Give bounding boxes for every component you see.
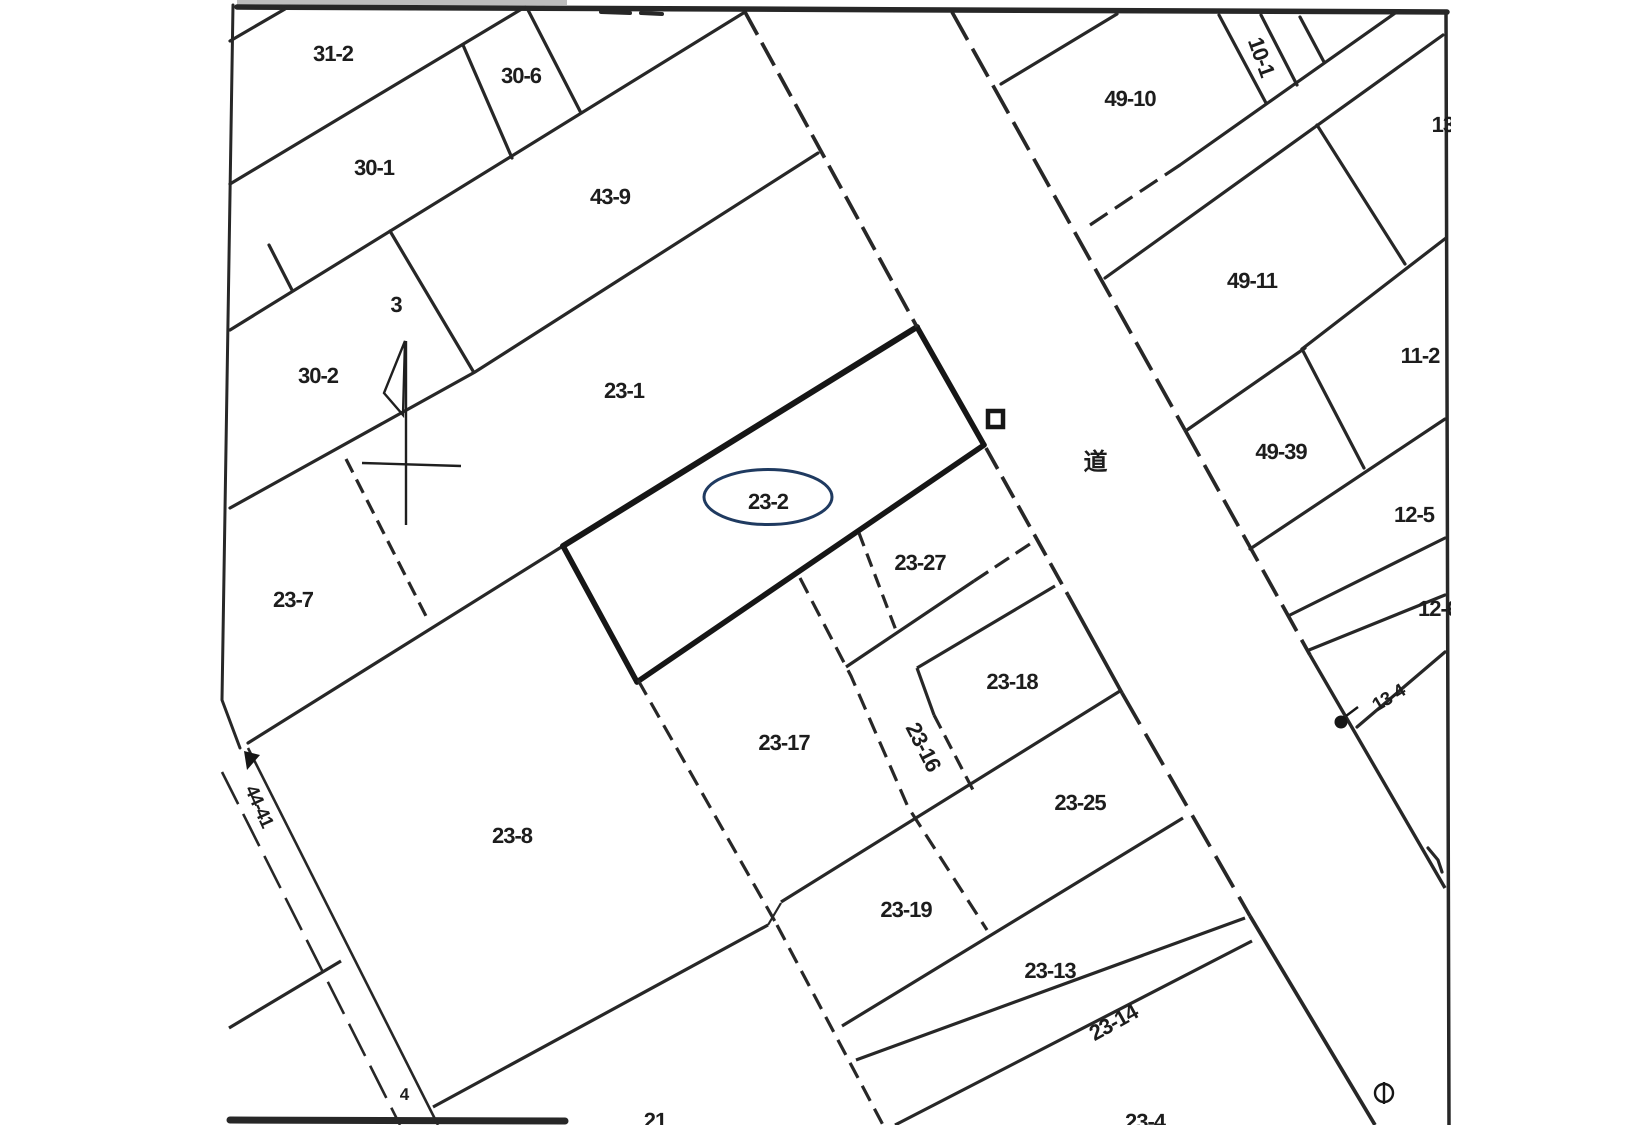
svg-text:30-1: 30-1: [354, 155, 395, 180]
svg-text:23-19: 23-19: [880, 897, 932, 922]
svg-text:11-2: 11-2: [1401, 343, 1441, 368]
svg-text:23-18: 23-18: [986, 669, 1038, 694]
svg-text:49-11: 49-11: [1227, 268, 1278, 293]
svg-text:49-10: 49-10: [1104, 86, 1156, 111]
svg-text:31-2: 31-2: [313, 41, 354, 66]
svg-text:49-39: 49-39: [1255, 439, 1307, 464]
svg-text:道: 道: [1084, 449, 1108, 476]
svg-text:23-1: 23-1: [604, 378, 645, 403]
svg-text:23-4: 23-4: [1125, 1109, 1167, 1125]
svg-text:23-7: 23-7: [273, 587, 314, 612]
svg-text:21: 21: [644, 1108, 667, 1125]
svg-text:23-17: 23-17: [758, 730, 810, 755]
svg-text:23-2: 23-2: [748, 489, 789, 514]
svg-text:30-2: 30-2: [298, 363, 339, 388]
svg-text:23-8: 23-8: [492, 823, 533, 848]
svg-text:23-25: 23-25: [1054, 790, 1106, 815]
svg-text:43-9: 43-9: [590, 184, 631, 209]
svg-text:12-5: 12-5: [1394, 502, 1435, 527]
svg-text:3: 3: [390, 292, 402, 317]
svg-text:30-6: 30-6: [501, 63, 542, 88]
svg-text:23-27: 23-27: [894, 550, 946, 575]
svg-text:23-13: 23-13: [1024, 958, 1076, 983]
